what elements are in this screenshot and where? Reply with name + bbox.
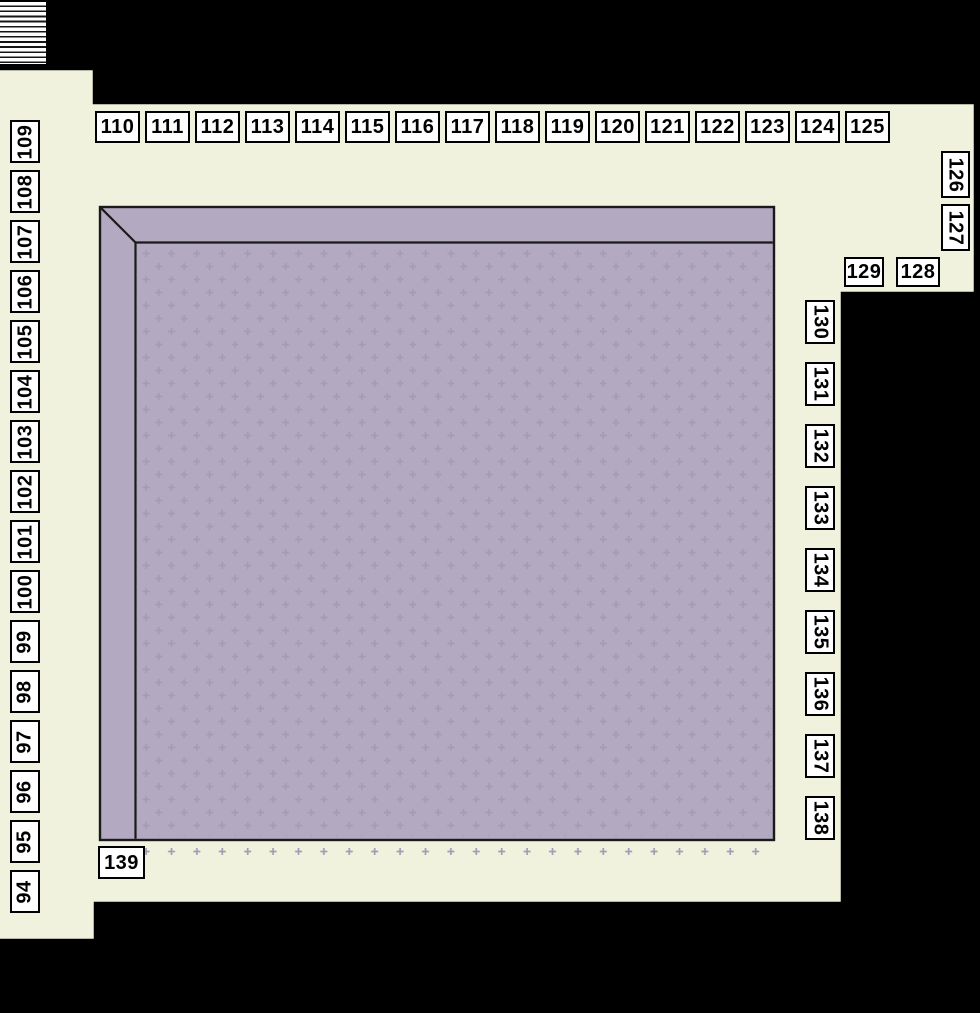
booth-label-102[interactable]: 102 — [10, 470, 40, 513]
booth-number: 109 — [15, 124, 35, 159]
booth-label-130[interactable]: 130 — [805, 300, 835, 344]
booth-label-138[interactable]: 138 — [805, 796, 835, 840]
booth-label-118[interactable]: 118 — [495, 111, 540, 143]
booth-label-128[interactable]: 128 — [896, 257, 940, 287]
booth-number: 113 — [251, 117, 285, 137]
booth-label-101[interactable]: 101 — [10, 520, 40, 563]
booth-label-layer: 1101111121131141151161171181191201211221… — [0, 0, 980, 1013]
booth-number: 99 — [15, 630, 35, 653]
booth-number: 115 — [351, 117, 385, 137]
booth-number: 127 — [946, 210, 966, 245]
booth-number: 100 — [15, 574, 35, 609]
booth-label-97[interactable]: 97 — [10, 720, 40, 763]
booth-number: 129 — [847, 262, 882, 282]
booth-number: 118 — [501, 117, 535, 137]
booth-number: 128 — [901, 262, 936, 282]
booth-label-108[interactable]: 108 — [10, 170, 40, 213]
booth-label-124[interactable]: 124 — [795, 111, 840, 143]
booth-number: 139 — [104, 853, 139, 873]
booth-number: 110 — [101, 117, 135, 137]
booth-label-99[interactable]: 99 — [10, 620, 40, 663]
booth-label-123[interactable]: 123 — [745, 111, 790, 143]
booth-number: 122 — [700, 117, 735, 137]
booth-label-115[interactable]: 115 — [345, 111, 390, 143]
booth-label-95[interactable]: 95 — [10, 820, 40, 863]
booth-number: 125 — [850, 117, 885, 137]
booth-label-127[interactable]: 127 — [941, 204, 970, 251]
booth-number: 94 — [15, 880, 35, 903]
booth-label-129[interactable]: 129 — [844, 257, 884, 287]
booth-number: 119 — [551, 117, 585, 137]
booth-number: 107 — [15, 224, 35, 259]
booth-number: 102 — [15, 474, 35, 509]
booth-label-119[interactable]: 119 — [545, 111, 590, 143]
booth-number: 131 — [810, 367, 830, 402]
booth-number: 137 — [810, 739, 830, 774]
booth-number: 112 — [201, 117, 235, 137]
booth-number: 108 — [15, 174, 35, 209]
booth-number: 111 — [151, 117, 184, 137]
booth-label-112[interactable]: 112 — [195, 111, 240, 143]
booth-label-131[interactable]: 131 — [805, 362, 835, 406]
booth-label-135[interactable]: 135 — [805, 610, 835, 654]
booth-number: 97 — [15, 730, 35, 753]
booth-label-106[interactable]: 106 — [10, 270, 40, 313]
booth-label-134[interactable]: 134 — [805, 548, 835, 592]
booth-number: 133 — [810, 491, 830, 526]
booth-number: 132 — [810, 429, 830, 464]
booth-label-139[interactable]: 139 — [98, 846, 145, 879]
booth-number: 136 — [810, 677, 830, 712]
booth-number: 101 — [15, 524, 35, 559]
booth-label-98[interactable]: 98 — [10, 670, 40, 713]
booth-number: 96 — [15, 780, 35, 803]
booth-number: 104 — [15, 374, 35, 409]
booth-label-105[interactable]: 105 — [10, 320, 40, 363]
booth-label-103[interactable]: 103 — [10, 420, 40, 463]
booth-label-125[interactable]: 125 — [845, 111, 890, 143]
booth-label-100[interactable]: 100 — [10, 570, 40, 613]
booth-number: 114 — [301, 117, 335, 137]
booth-number: 135 — [810, 615, 830, 650]
booth-number: 120 — [600, 117, 635, 137]
booth-number: 121 — [650, 117, 685, 137]
booth-label-133[interactable]: 133 — [805, 486, 835, 530]
booth-number: 123 — [750, 117, 785, 137]
booth-label-132[interactable]: 132 — [805, 424, 835, 468]
booth-label-117[interactable]: 117 — [445, 111, 490, 143]
booth-number: 124 — [800, 117, 835, 137]
booth-number: 134 — [810, 553, 830, 588]
booth-label-96[interactable]: 96 — [10, 770, 40, 813]
booth-label-107[interactable]: 107 — [10, 220, 40, 263]
booth-number: 105 — [15, 324, 35, 359]
booth-label-137[interactable]: 137 — [805, 734, 835, 778]
booth-label-136[interactable]: 136 — [805, 672, 835, 716]
booth-number: 103 — [15, 424, 35, 459]
booth-label-120[interactable]: 120 — [595, 111, 640, 143]
booth-number: 130 — [810, 305, 830, 340]
floor-plan-canvas: 1101111121131141151161171181191201211221… — [0, 0, 980, 1013]
booth-label-114[interactable]: 114 — [295, 111, 340, 143]
booth-label-122[interactable]: 122 — [695, 111, 740, 143]
booth-label-116[interactable]: 116 — [395, 111, 440, 143]
booth-number: 95 — [15, 830, 35, 853]
booth-number: 98 — [15, 680, 35, 703]
booth-number: 126 — [946, 157, 966, 192]
booth-label-113[interactable]: 113 — [245, 111, 290, 143]
booth-number: 117 — [451, 117, 485, 137]
booth-label-111[interactable]: 111 — [145, 111, 190, 143]
booth-number: 116 — [401, 117, 435, 137]
booth-label-110[interactable]: 110 — [95, 111, 140, 143]
booth-label-121[interactable]: 121 — [645, 111, 690, 143]
booth-number: 106 — [15, 274, 35, 309]
booth-label-126[interactable]: 126 — [941, 151, 970, 198]
booth-label-109[interactable]: 109 — [10, 120, 40, 163]
booth-label-104[interactable]: 104 — [10, 370, 40, 413]
booth-number: 138 — [810, 801, 830, 836]
booth-label-94[interactable]: 94 — [10, 870, 40, 913]
